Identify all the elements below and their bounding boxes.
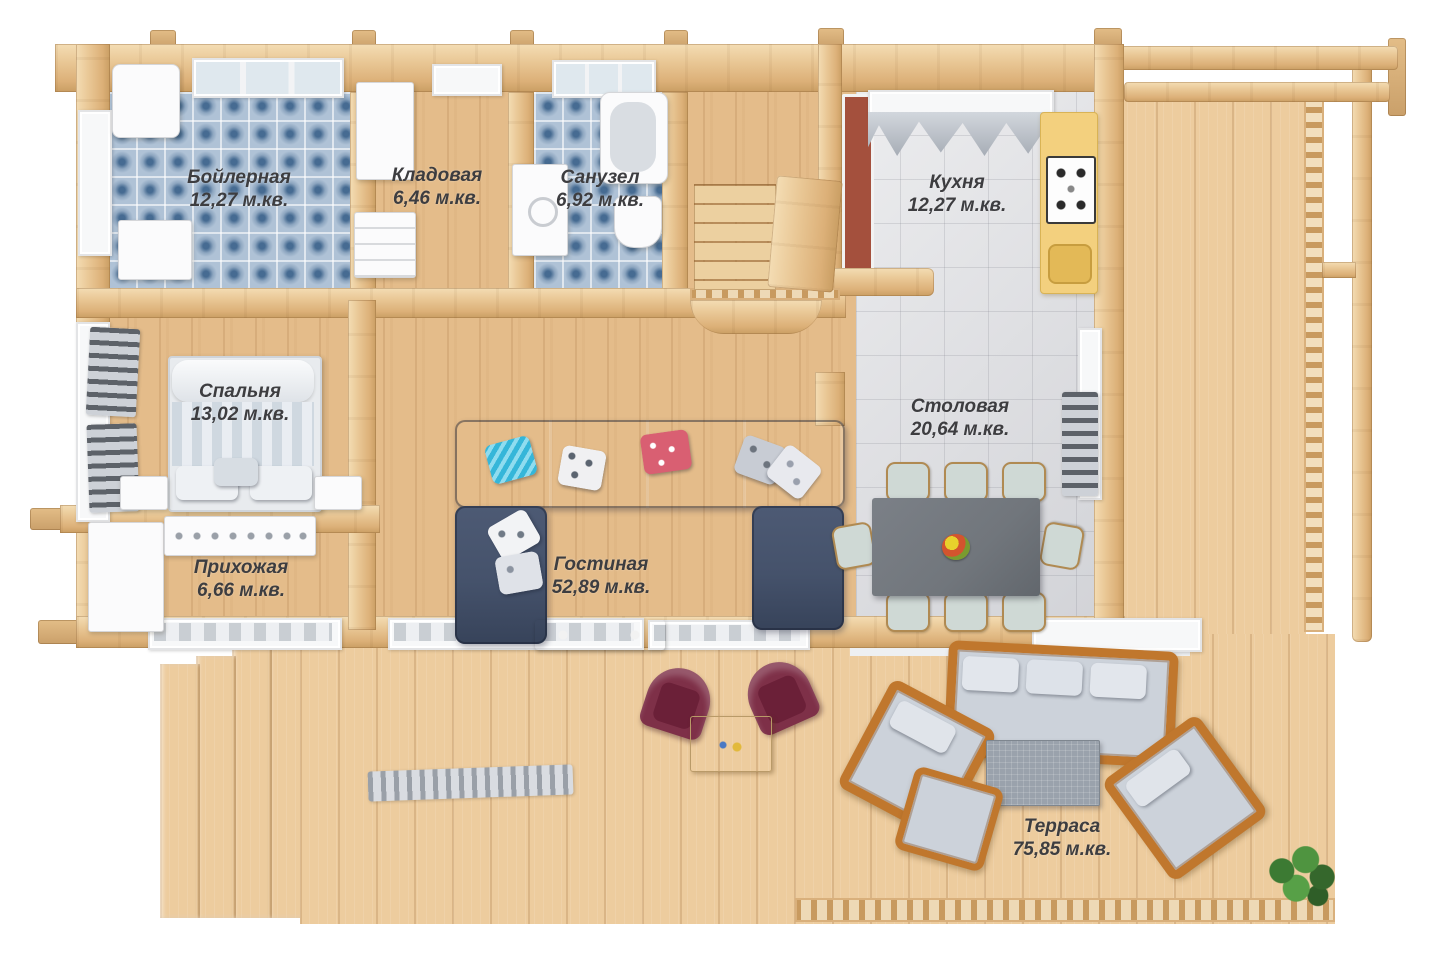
room-name: Кухня	[852, 171, 1062, 194]
dining-curtain	[1062, 392, 1098, 496]
floor-plan: Бойлерная 12,27 м.кв. Кладовая 6,46 м.кв…	[0, 0, 1438, 959]
pergola-post-outer	[1352, 58, 1372, 642]
room-name: Бойлерная	[134, 166, 344, 189]
terrace-sofa-cushion-3	[1089, 663, 1147, 700]
room-label-boiler: Бойлерная 12,27 м.кв.	[134, 166, 344, 212]
terrace-coffee-table	[986, 740, 1100, 806]
bathtub-basin	[610, 102, 656, 172]
fruit-bowl	[942, 534, 970, 560]
room-area: 13,02 м.кв.	[135, 403, 345, 426]
room-label-kitchen: Кухня 12,27 м.кв.	[852, 171, 1062, 217]
nightstand-left	[120, 476, 168, 510]
room-name: Гостиная	[496, 553, 706, 576]
room-area: 75,85 м.кв.	[957, 838, 1167, 861]
pergola-connector	[1322, 262, 1356, 278]
sofa-pillow-dotted-1	[557, 444, 607, 491]
bed-cushion-center	[214, 458, 258, 486]
room-name: Санузел	[495, 166, 705, 189]
pergola-beam-top	[1106, 46, 1398, 70]
staircase-landing	[767, 175, 843, 292]
room-label-dining: Столовая 20,64 м.кв.	[855, 395, 1065, 441]
tv-console	[535, 620, 665, 650]
terrace-sofa-cushion-1	[962, 656, 1020, 693]
pillar-dining	[815, 372, 845, 426]
boiler-left-window	[78, 110, 112, 256]
room-name: Терраса	[957, 815, 1167, 838]
boiler-appliance	[118, 220, 192, 280]
terrace-sofa-cushion-2	[1026, 659, 1084, 696]
pergola-beam-second	[1124, 82, 1390, 102]
room-area: 20,64 м.кв.	[855, 418, 1065, 441]
room-label-terrace: Терраса 75,85 м.кв.	[957, 815, 1167, 861]
terrace-step-3	[196, 656, 236, 918]
coffee-table-wood	[690, 716, 772, 772]
room-label-living: Гостиная 52,89 м.кв.	[496, 553, 706, 599]
log-end-left-mid	[30, 508, 64, 530]
sofa-pillow-red	[639, 429, 692, 475]
room-area: 6,66 м.кв.	[136, 579, 346, 602]
room-label-bathroom: Санузел 6,92 м.кв.	[495, 166, 705, 212]
bed-pillow-right	[250, 466, 312, 500]
room-area: 6,92 м.кв.	[495, 189, 705, 212]
kitchen-sink	[1048, 244, 1092, 284]
staircase-treads	[694, 184, 776, 290]
dining-chair-right	[1038, 521, 1085, 571]
plant	[1266, 846, 1338, 908]
wall-bedroom-living	[348, 300, 376, 630]
stair-landing-bulge	[690, 300, 822, 334]
room-label-hallway: Прихожая 6,66 м.кв.	[136, 556, 346, 602]
bedroom-curtain-top	[86, 327, 141, 417]
terrace-deck-right	[1118, 88, 1306, 644]
dining-chair-bottom-2	[944, 592, 988, 632]
storage-shelf-low	[354, 212, 416, 278]
boiler-top-window	[192, 58, 344, 98]
hallway-bench	[164, 516, 316, 556]
dining-chair-bottom-1	[886, 592, 930, 632]
room-name: Прихожая	[136, 556, 346, 579]
hallway-bottom-window	[148, 618, 342, 650]
room-area: 52,89 м.кв.	[496, 576, 706, 599]
terrace-armchair-left-cushion	[887, 699, 958, 756]
room-label-bedroom: Спальня 13,02 м.кв.	[135, 380, 345, 426]
terrace-step-2	[232, 648, 272, 918]
boiler-unit	[112, 64, 180, 138]
dining-chair-top-2	[944, 462, 988, 502]
dining-chair-left	[830, 521, 877, 571]
dining-chair-top-1	[886, 462, 930, 502]
room-area: 12,27 м.кв.	[134, 189, 344, 212]
log-end-left-bottom	[38, 620, 80, 644]
terrace-edge-rail	[795, 898, 1335, 922]
room-area: 12,27 м.кв.	[852, 194, 1062, 217]
nightstand-right	[314, 476, 362, 510]
hallway-bottom-curtain	[154, 623, 332, 641]
sofa-right-section	[752, 506, 844, 630]
room-name: Спальня	[135, 380, 345, 403]
terrace-step-4	[160, 664, 200, 918]
dining-chair-bottom-3	[1002, 592, 1046, 632]
terrace-railing-right	[1304, 92, 1324, 632]
storage-top-window	[432, 64, 502, 96]
room-name: Столовая	[855, 395, 1065, 418]
kitchen-ledge	[832, 268, 934, 296]
dining-chair-top-3	[1002, 462, 1046, 502]
